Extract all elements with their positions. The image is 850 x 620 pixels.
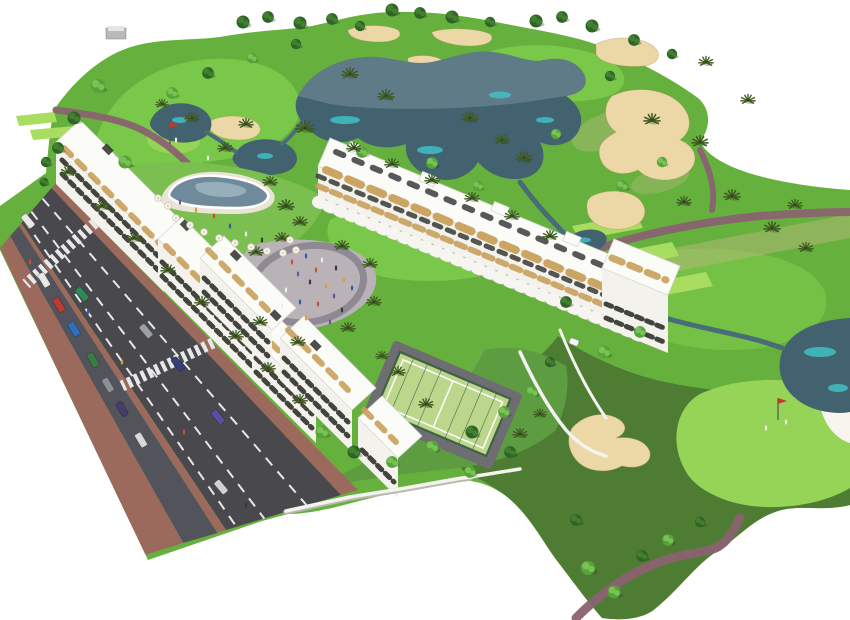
person (229, 224, 231, 229)
parasol-icon (293, 247, 300, 254)
person (245, 232, 247, 237)
person (333, 294, 335, 299)
water-highlight (804, 347, 836, 357)
person (29, 260, 31, 265)
person (351, 286, 353, 291)
parasol-icon (216, 235, 223, 242)
person (179, 200, 181, 205)
water-highlight (489, 92, 511, 99)
person (175, 138, 177, 143)
water-highlight (172, 117, 188, 123)
rendering-canvas (0, 0, 850, 620)
aerial-rendering (0, 0, 850, 620)
person (335, 266, 337, 271)
person (121, 360, 123, 365)
person (785, 420, 787, 425)
parasol-icon (187, 222, 194, 229)
person (207, 156, 209, 161)
water-highlight (828, 384, 848, 392)
person (315, 268, 317, 273)
parasol-icon (155, 195, 162, 202)
person (291, 260, 293, 265)
clubhouse-roof (108, 26, 124, 31)
water-highlight (257, 153, 273, 159)
bunker (587, 191, 645, 229)
person (343, 278, 345, 283)
parasol-icon (165, 203, 172, 210)
person (297, 272, 299, 277)
person (87, 310, 89, 315)
parasol-icon (264, 248, 271, 255)
clubhouse (106, 26, 126, 39)
person (317, 302, 319, 307)
parasol-icon (173, 215, 180, 222)
person (309, 280, 311, 285)
parasol-icon (201, 229, 208, 236)
person (305, 316, 307, 321)
person (195, 208, 197, 213)
person (325, 284, 327, 289)
person (213, 214, 215, 219)
parasol-icon (232, 240, 239, 247)
person (321, 258, 323, 263)
water-highlight (330, 116, 360, 124)
person (341, 308, 343, 313)
person (183, 430, 185, 435)
person (765, 426, 767, 431)
person (281, 304, 283, 309)
person (285, 288, 287, 293)
parasol-icon (248, 244, 255, 251)
person (329, 320, 331, 325)
parasol-icon (280, 250, 287, 257)
water-highlight (417, 146, 443, 154)
person (245, 503, 247, 508)
parasol-icon (287, 237, 294, 244)
person (261, 238, 263, 243)
water-highlight (536, 117, 554, 123)
person (305, 254, 307, 259)
person (299, 300, 301, 305)
